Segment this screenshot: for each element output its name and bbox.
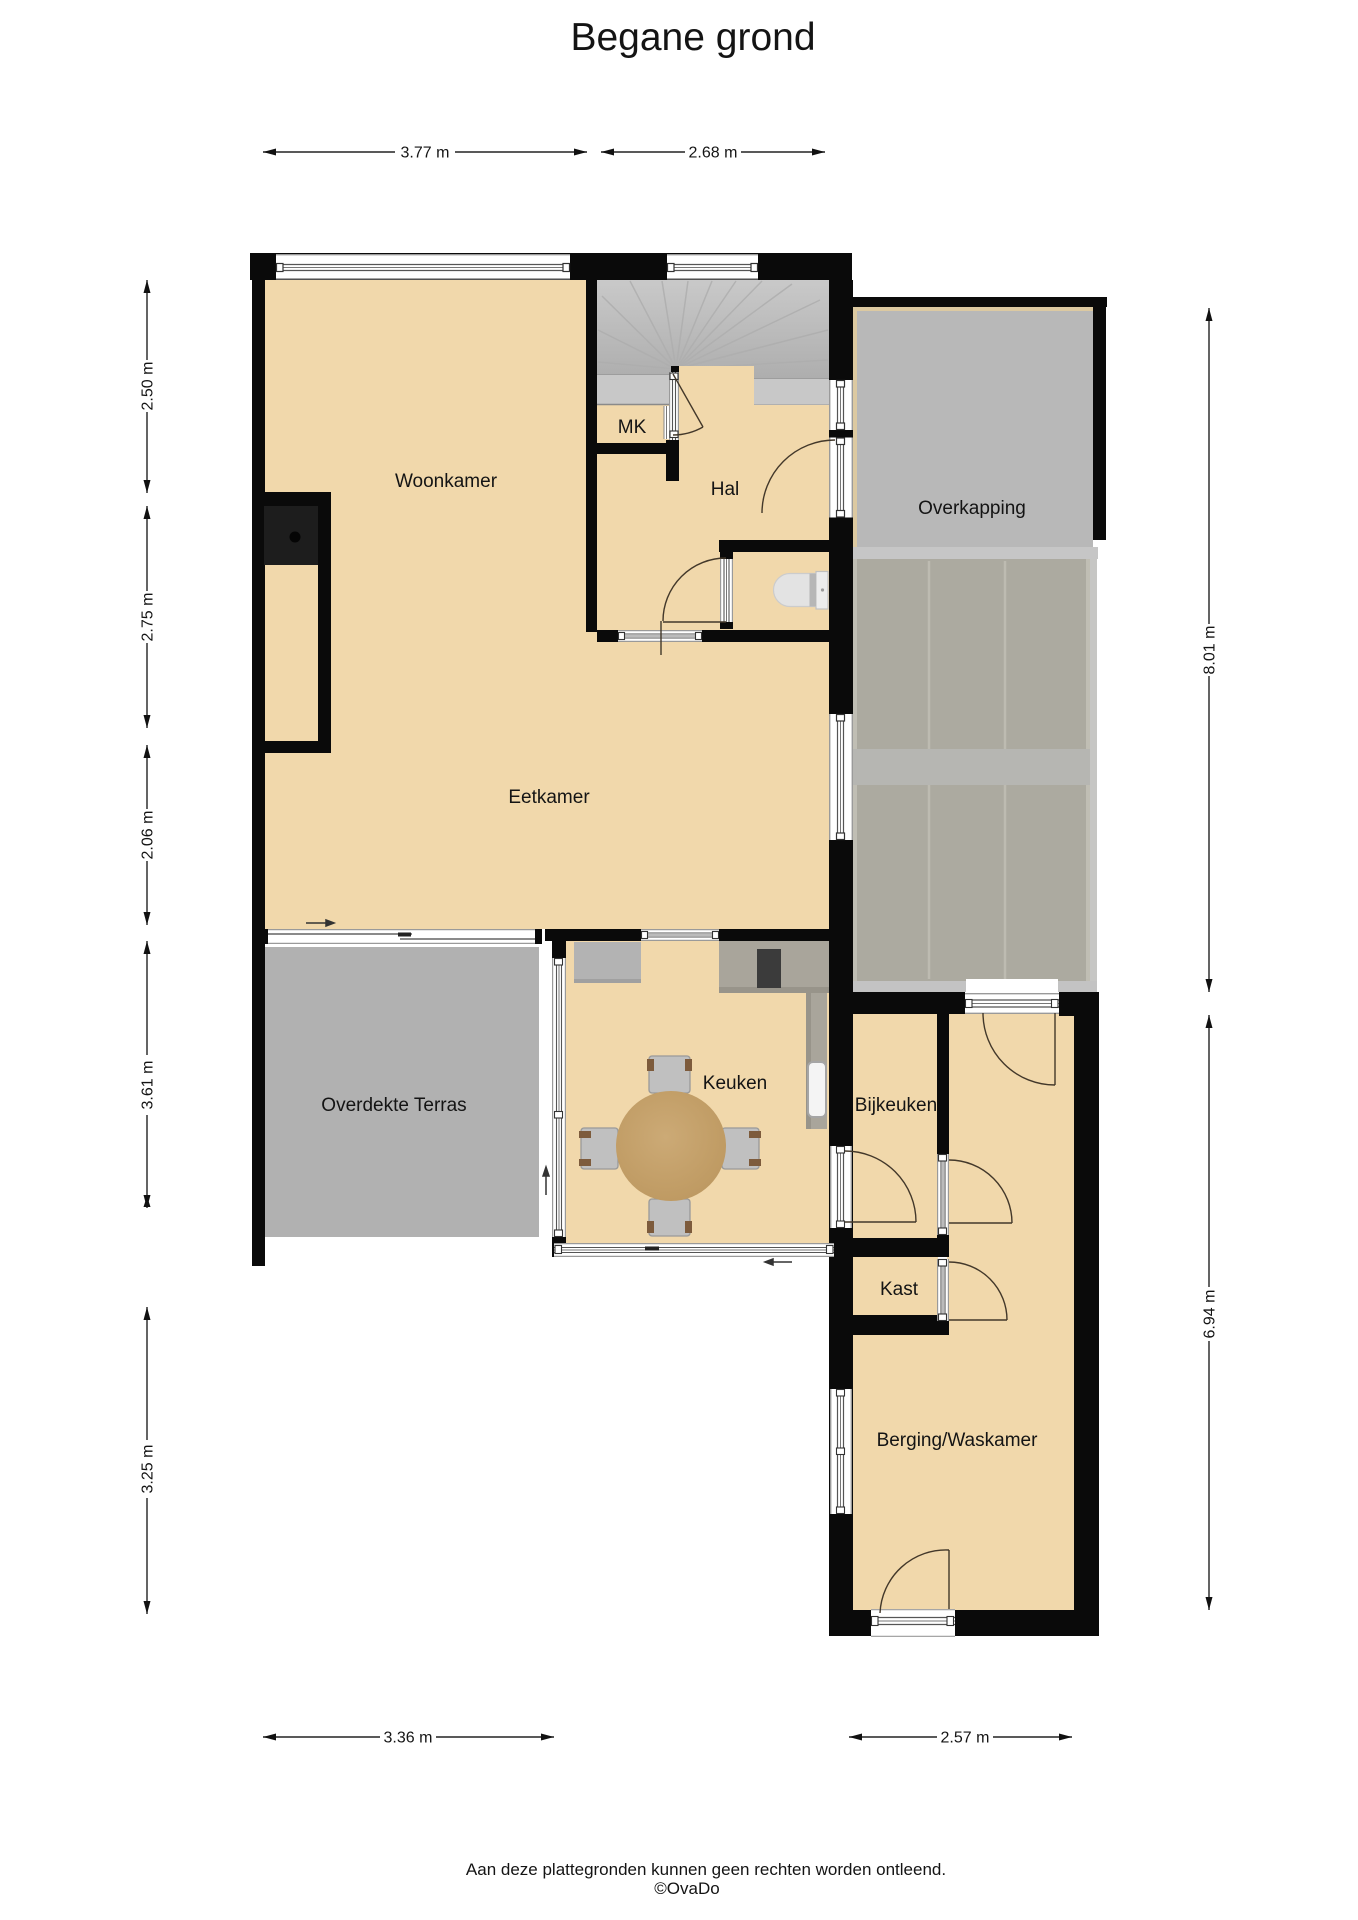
svg-text:3.61 m: 3.61 m [140, 1061, 157, 1110]
svg-text:Overkapping: Overkapping [918, 498, 1026, 519]
svg-text:Aan deze plattegronden kunnen: Aan deze plattegronden kunnen geen recht… [466, 1860, 946, 1879]
svg-text:Overdekte Terras: Overdekte Terras [321, 1095, 466, 1116]
svg-text:Eetkamer: Eetkamer [508, 787, 590, 808]
svg-text:3.36 m: 3.36 m [384, 1730, 433, 1747]
svg-text:©OvaDo: ©OvaDo [654, 1879, 719, 1898]
svg-text:2.50 m: 2.50 m [140, 362, 157, 411]
svg-text:2.75 m: 2.75 m [140, 593, 157, 642]
svg-text:3.25 m: 3.25 m [140, 1445, 157, 1494]
svg-text:2.57 m: 2.57 m [941, 1730, 990, 1747]
svg-text:Begane grond: Begane grond [570, 16, 815, 59]
svg-text:Bijkeuken: Bijkeuken [855, 1095, 937, 1116]
svg-text:3.77 m: 3.77 m [401, 145, 450, 162]
svg-text:Berging/Waskamer: Berging/Waskamer [877, 1430, 1039, 1451]
svg-text:Keuken: Keuken [703, 1073, 767, 1094]
svg-text:6.94 m: 6.94 m [1202, 1290, 1219, 1339]
svg-text:2.06 m: 2.06 m [140, 811, 157, 860]
svg-text:Woonkamer: Woonkamer [395, 471, 498, 492]
svg-text:8.01 m: 8.01 m [1202, 626, 1219, 675]
svg-text:Kast: Kast [880, 1279, 919, 1300]
svg-text:2.68 m: 2.68 m [689, 145, 738, 162]
svg-text:Hal: Hal [711, 479, 740, 500]
svg-text:MK: MK [618, 417, 647, 438]
